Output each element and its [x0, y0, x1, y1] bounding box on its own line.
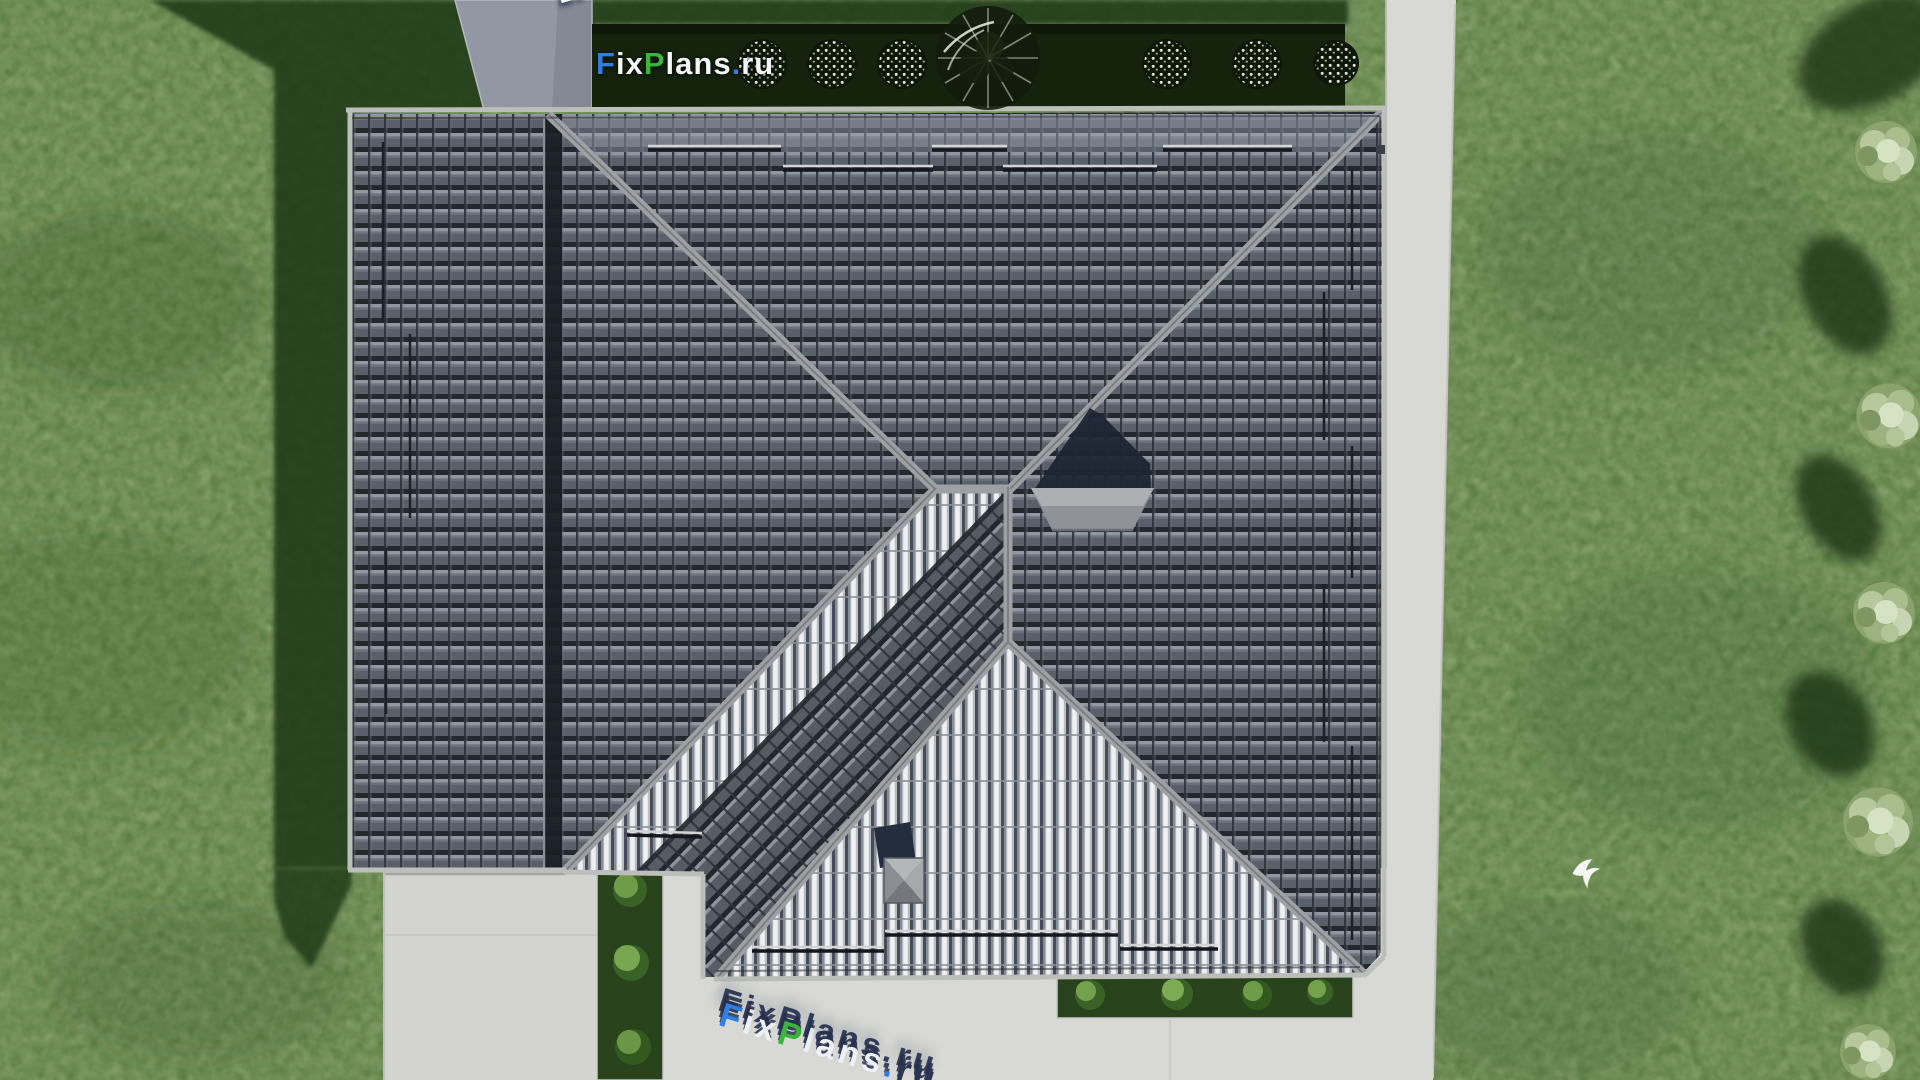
roof-left-section: [352, 114, 548, 868]
tree-top-dark: [936, 6, 1040, 110]
gutter-bracket: [1376, 145, 1385, 154]
render-viewport: FixPlans.ru FixPlans.ru FixPlans.ru: [0, 0, 1920, 1080]
scene-render: [0, 0, 1920, 1080]
hedge-strip-left: [597, 872, 663, 1080]
roof-valley-vertical: [546, 114, 562, 868]
driveway-left: [383, 870, 597, 1080]
hedge-strip-bottom: [1057, 973, 1353, 1018]
house-roof: [346, 108, 1386, 979]
